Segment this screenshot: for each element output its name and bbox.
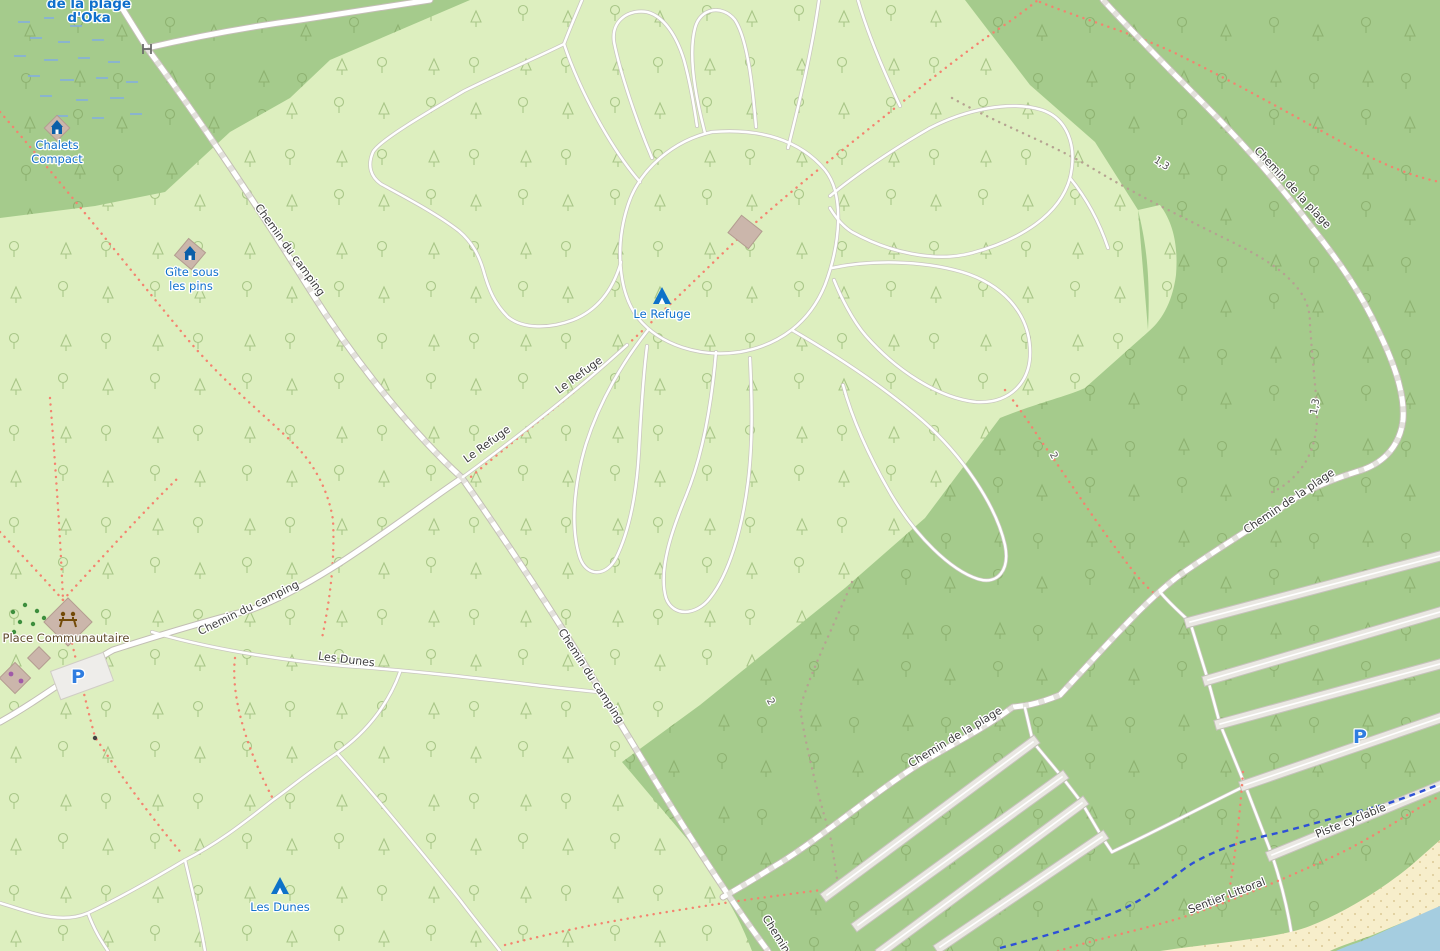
parking-icon: P [71, 666, 85, 688]
map-svg: Chemin du camping Chemin du camping Chem… [0, 0, 1440, 951]
place-communautaire-label: Place Communautaire [3, 631, 130, 645]
chalets-compact-label-line2: Compact [31, 152, 83, 166]
area-label-line2: d'Oka [67, 10, 110, 26]
trail-marker-dot [93, 736, 97, 740]
parking-icon: P [1353, 726, 1367, 748]
dunes-campsite-label: Les Dunes [250, 900, 309, 914]
refuge-campsite-label: Le Refuge [633, 307, 690, 321]
chalets-compact-label-line1: Chalets [35, 138, 78, 152]
gite-label-line1: Gîte sous [165, 265, 219, 279]
map-canvas[interactable]: Chemin du camping Chemin du camping Chem… [0, 0, 1440, 951]
gite-label-line2: les pins [169, 279, 213, 293]
